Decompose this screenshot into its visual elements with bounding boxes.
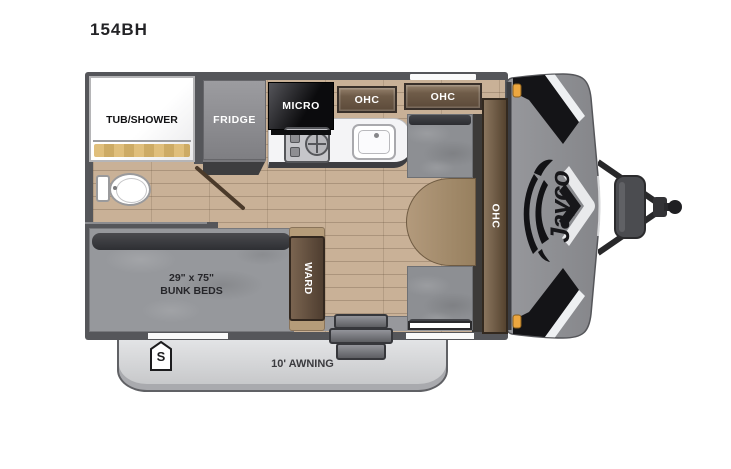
tub-shower: TUB/SHOWER: [89, 76, 195, 162]
floorplan-page: 154BH 10' AWNING S TUB/SHOWER FRIDGE MIC…: [0, 0, 731, 469]
window-marker-bottom-right: [406, 333, 474, 339]
spare-tire-badge: S: [150, 341, 172, 371]
sink-faucet: [374, 133, 379, 138]
kitchen-sink-icon: [352, 124, 396, 160]
overhead-cabinet-right: OHC: [404, 83, 482, 110]
window-marker-bottom-left: [148, 333, 228, 339]
wardrobe: WARD: [289, 236, 325, 321]
fridge-label: FRIDGE: [213, 114, 256, 126]
microwave: MICRO: [268, 82, 334, 130]
tub-shower-label: TUB/SHOWER: [91, 114, 193, 126]
bathroom-wall: [194, 72, 203, 164]
refrigerator: FRIDGE: [203, 80, 266, 160]
burner-icon: [305, 132, 329, 156]
toilet-seat: [116, 178, 147, 203]
stove-knob: [290, 147, 300, 157]
spare-badge-letter: S: [150, 349, 172, 364]
entry-step: [334, 314, 388, 329]
ohc-left-label: OHC: [355, 94, 380, 106]
microwave-vent: [271, 130, 331, 135]
shower-rod: [93, 140, 191, 142]
entry-step: [329, 328, 393, 344]
jayco-logo-text: Jayco: [545, 144, 575, 270]
marker-light-icon: [513, 84, 521, 97]
dinette-bench-top: [407, 114, 473, 178]
entry-step: [336, 343, 386, 360]
bunk-bolster: [92, 233, 291, 250]
ohc-right-label: OHC: [431, 91, 456, 103]
overhead-cabinet-left: OHC: [337, 86, 397, 113]
hitch-ball-icon: [668, 200, 682, 214]
hitch-assembly: [598, 150, 683, 265]
bench-bolster: [409, 115, 471, 125]
toilet-flush-button: [113, 186, 117, 190]
page-title: 154BH: [90, 20, 148, 40]
micro-label: MICRO: [282, 100, 320, 112]
bunk-type-label: BUNK BEDS: [89, 285, 294, 298]
marker-light-icon: [513, 315, 521, 328]
bunk-size-label: 29" x 75": [89, 272, 294, 285]
shower-curtain: [94, 144, 190, 157]
front-cap: Jayco: [505, 72, 602, 340]
window-marker-top: [410, 74, 476, 80]
ohc-front-label: OHC: [489, 204, 501, 229]
bathroom-door-swing: [193, 164, 249, 214]
entry-door-threshold: [408, 321, 472, 330]
toilet-tank: [96, 175, 110, 202]
bunk-beds-label: 29" x 75" BUNK BEDS: [89, 272, 294, 298]
wardrobe-label: WARD: [302, 262, 313, 295]
overhead-cabinet-front-wall: OHC: [482, 98, 508, 334]
